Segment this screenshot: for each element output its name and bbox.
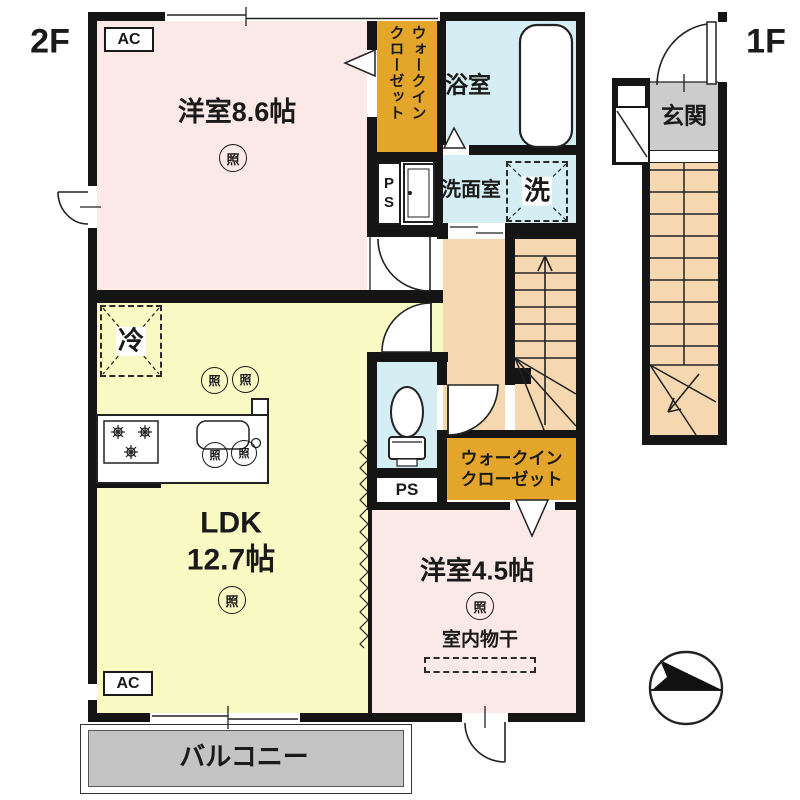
label-ldk-size: 12.7帖 [187, 544, 275, 577]
label-wic-top: ウォークイン クローゼット [379, 25, 435, 149]
label-ldk: LDK [200, 507, 262, 540]
label-indoor-drying: 室内物干 [442, 631, 518, 652]
light-circle: 照 [201, 367, 228, 394]
shoe-cabinet-diagonal [617, 111, 647, 157]
wic-top-col2: クローゼット [386, 25, 407, 149]
bathtub-icon [520, 25, 572, 147]
compass-icon [649, 652, 723, 724]
label-washer: 洗 [522, 177, 552, 206]
accordion-door [360, 440, 368, 648]
drying-rail [424, 657, 536, 673]
label-bath: 浴室 [445, 72, 491, 97]
ac-box-ldk: AC [103, 671, 153, 696]
stairs-1f-treads [650, 163, 718, 435]
label-fridge: 冷 [116, 327, 146, 356]
light-circle: 照 [232, 366, 259, 393]
light-circle: 照 [466, 592, 494, 620]
wic-bottom-line2: クローゼット [461, 469, 563, 490]
light-circle: 照 [202, 442, 228, 468]
label-balcony: バルコニー [179, 743, 308, 772]
label-washroom: 洗面室 [441, 179, 501, 201]
genkan-door [650, 22, 718, 92]
toilet-icon [389, 387, 425, 466]
label-wic-bottom: ウォークイン クローゼット [447, 438, 576, 500]
ac-box-bedroom: AC [104, 27, 154, 52]
label-bedroom45: 洋室4.5帖 [420, 557, 534, 586]
ps-box-top: PS [377, 162, 401, 225]
wic-top-col1: ウォークイン [408, 25, 429, 149]
label-genkan: 玄関 [661, 103, 707, 128]
label-floor-2f: 2F [30, 23, 70, 60]
ps-box-bottom: PS [377, 478, 437, 502]
label-bedroom86: 洋室8.6帖 [178, 98, 297, 128]
wic-bottom-line1: ウォークイン [461, 448, 563, 469]
stairs-down-arrow [668, 374, 699, 412]
light-circle: 照 [231, 440, 257, 466]
floorplan-canvas: 2F 1F AC AC 洋室8.6帖 照 ウォークイン クローゼット 浴室 PS… [0, 0, 800, 800]
light-circle: 照 [218, 586, 246, 614]
light-circle: 照 [219, 144, 247, 172]
label-floor-1f: 1F [746, 23, 786, 60]
